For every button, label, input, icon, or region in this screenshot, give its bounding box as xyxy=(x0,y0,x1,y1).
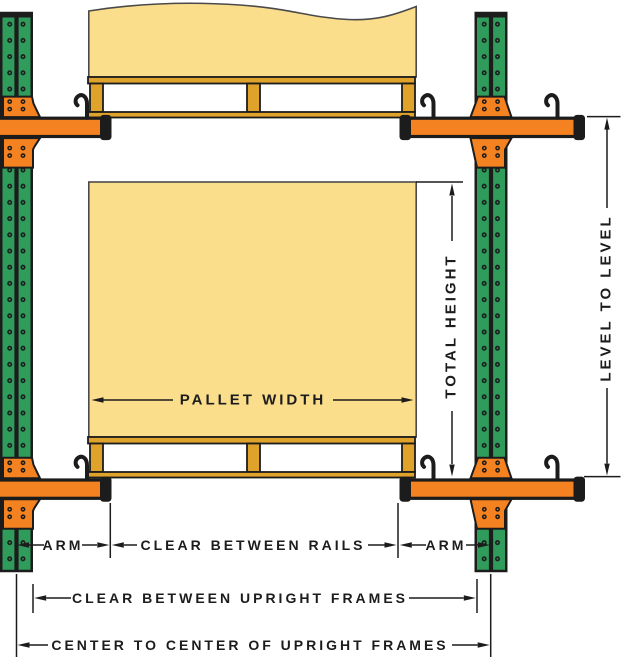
upper-pallet-load xyxy=(89,3,416,77)
pallet-stop-hook xyxy=(76,95,87,118)
arm-left-label: ARM xyxy=(43,538,84,552)
clear-between-rails-label: CLEAR BETWEEN RAILS xyxy=(141,538,366,552)
rack-diagram-svg xyxy=(0,0,621,660)
total-height-label: TOTAL HEIGHT xyxy=(444,253,459,398)
upper-left-arm xyxy=(0,115,112,140)
pallet-stop-hook xyxy=(546,95,557,118)
lower-pallet xyxy=(88,437,415,478)
pallet-stop-hook xyxy=(546,457,557,480)
pallet-rack-dimension-diagram: PALLET WIDTH TOTAL HEIGHT LEVEL TO LEVEL… xyxy=(0,0,621,660)
upper-pallet xyxy=(88,77,415,118)
lower-left-arm xyxy=(0,477,112,502)
pallet-stop-hook xyxy=(422,457,433,480)
pallet-stop-hook xyxy=(76,457,87,480)
pallet-stop-hook xyxy=(422,95,433,118)
pallet-width-label: PALLET WIDTH xyxy=(180,393,327,408)
center-to-center-label: CENTER TO CENTER OF UPRIGHT FRAMES xyxy=(51,638,448,652)
level-to-level-label: LEVEL TO LEVEL xyxy=(599,214,614,381)
arm-right-label: ARM xyxy=(426,538,467,552)
clear-between-upright-frames-label: CLEAR BETWEEN UPRIGHT FRAMES xyxy=(72,591,408,605)
